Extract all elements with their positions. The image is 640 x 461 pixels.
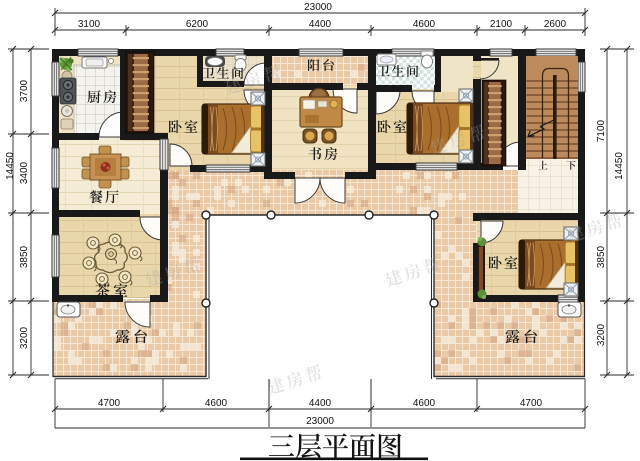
- svg-text:3700: 3700: [19, 79, 30, 102]
- svg-text:23000: 23000: [306, 416, 334, 427]
- svg-text:4600: 4600: [413, 398, 436, 409]
- svg-text:2100: 2100: [490, 19, 513, 30]
- svg-text:3200: 3200: [19, 326, 30, 349]
- svg-text:4600: 4600: [205, 398, 228, 409]
- svg-text:3400: 3400: [19, 161, 30, 184]
- svg-text:3850: 3850: [19, 245, 30, 268]
- svg-text:14450: 14450: [614, 152, 625, 180]
- svg-text:3200: 3200: [596, 323, 607, 346]
- svg-text:4700: 4700: [98, 398, 121, 409]
- svg-text:23000: 23000: [304, 2, 332, 13]
- svg-text:2600: 2600: [544, 19, 567, 30]
- svg-text:4400: 4400: [309, 19, 332, 30]
- svg-text:3100: 3100: [78, 19, 101, 30]
- svg-text:7100: 7100: [596, 119, 607, 142]
- svg-text:3850: 3850: [596, 245, 607, 268]
- svg-text:6200: 6200: [186, 19, 209, 30]
- svg-text:4600: 4600: [413, 19, 436, 30]
- svg-text:4700: 4700: [520, 398, 543, 409]
- svg-text:4400: 4400: [309, 398, 332, 409]
- svg-text:14450: 14450: [5, 152, 16, 180]
